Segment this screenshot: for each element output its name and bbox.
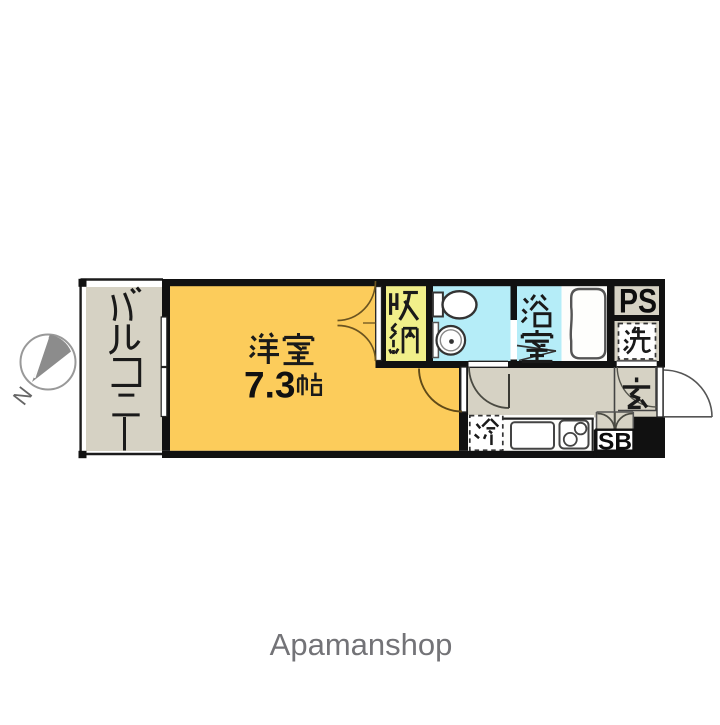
- svg-text:SB: SB: [598, 429, 632, 456]
- svg-text:PS: PS: [619, 283, 657, 321]
- svg-text:7.3: 7.3: [244, 365, 295, 406]
- svg-text:Apamanshop: Apamanshop: [270, 627, 453, 662]
